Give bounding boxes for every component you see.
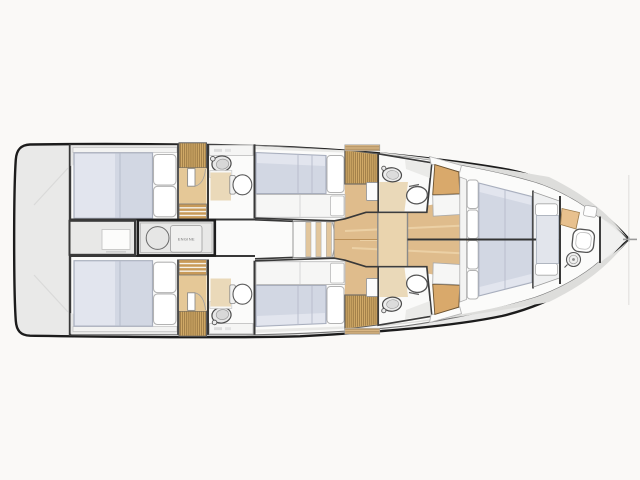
svg-text:ENGINE: ENGINE [178,237,195,242]
